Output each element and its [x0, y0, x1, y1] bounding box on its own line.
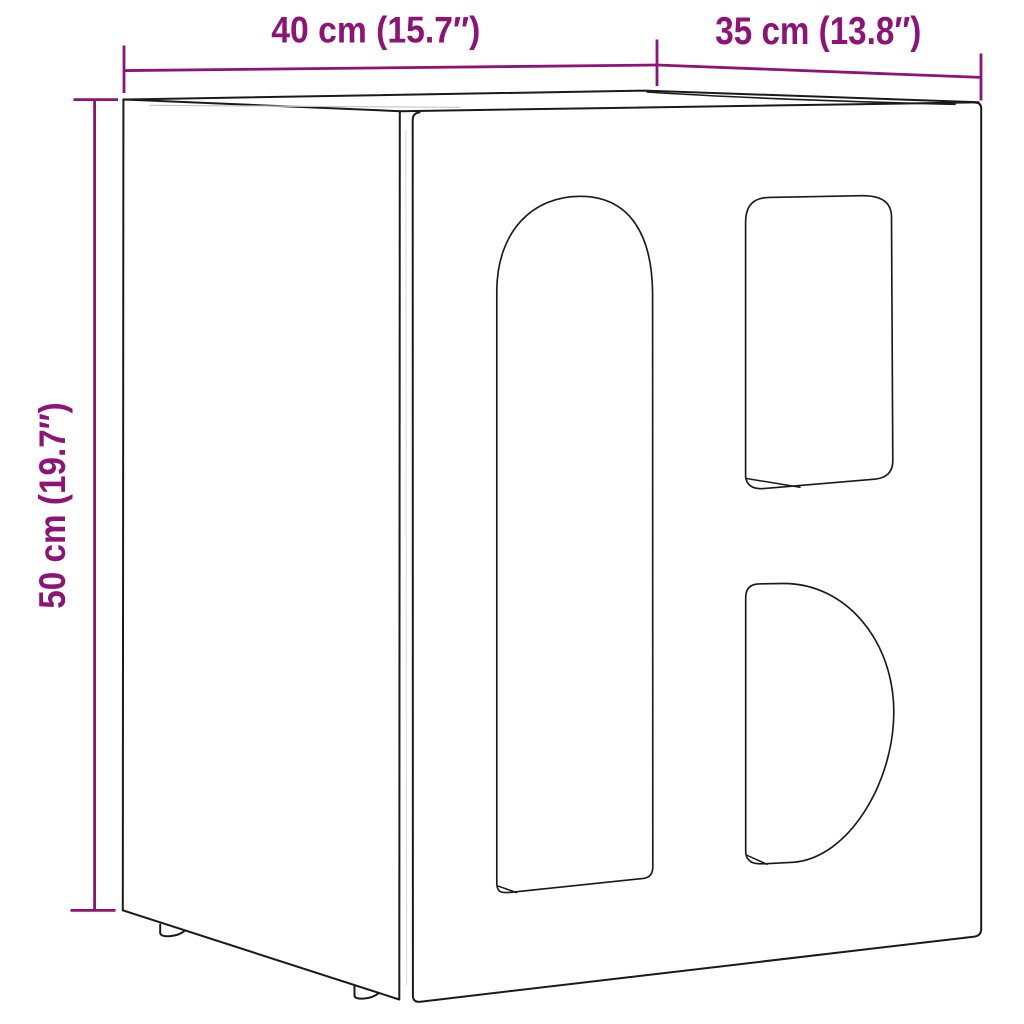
svg-text:50 cm (19.7″): 50 cm (19.7″)	[31, 402, 73, 609]
svg-text:40 cm (15.7″): 40 cm (15.7″)	[271, 9, 480, 50]
svg-text:35 cm (13.8″): 35 cm (13.8″)	[715, 10, 921, 53]
